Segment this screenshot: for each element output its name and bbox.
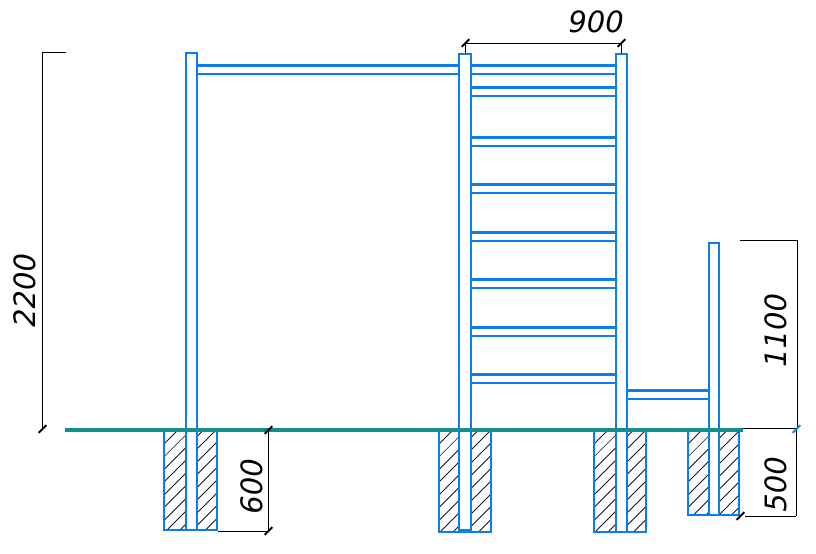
ladder-rung xyxy=(472,136,615,147)
drawing-canvas: 900 2200 1100 600 500 xyxy=(0,0,816,554)
ladder-rung xyxy=(472,231,615,242)
dim-1100-ext-bottom xyxy=(743,428,797,429)
ladder-rung xyxy=(472,64,615,75)
bench-post xyxy=(708,242,720,516)
dim-label-right-height: 1100 xyxy=(760,280,792,380)
dim-2200-ext-top xyxy=(42,52,66,53)
ladder-rung xyxy=(472,278,615,289)
ladder-rung xyxy=(472,326,615,337)
dim-label-left-foundation-depth: 600 xyxy=(236,436,268,536)
ladder-rung xyxy=(472,86,615,97)
dim-label-right-foundation-depth: 500 xyxy=(760,434,792,534)
ladder-rung xyxy=(472,183,615,194)
pullup-post xyxy=(185,52,198,531)
dim-label-left-height: 2200 xyxy=(9,240,41,340)
dim-900-line xyxy=(465,43,622,44)
ladder-post-right xyxy=(615,53,628,533)
dim-2200-line xyxy=(42,52,43,429)
dim-1100-line xyxy=(797,240,798,429)
dim-tick xyxy=(38,424,47,433)
ladder-post-left xyxy=(458,53,472,531)
pullup-bar xyxy=(198,64,458,75)
dim-1100-ext-top xyxy=(740,240,798,241)
dim-500-line xyxy=(796,429,797,516)
ground-line xyxy=(65,428,743,432)
bench-rail xyxy=(627,389,708,400)
ladder-rung xyxy=(472,373,615,384)
dim-label-top-width: 900 xyxy=(556,6,636,38)
